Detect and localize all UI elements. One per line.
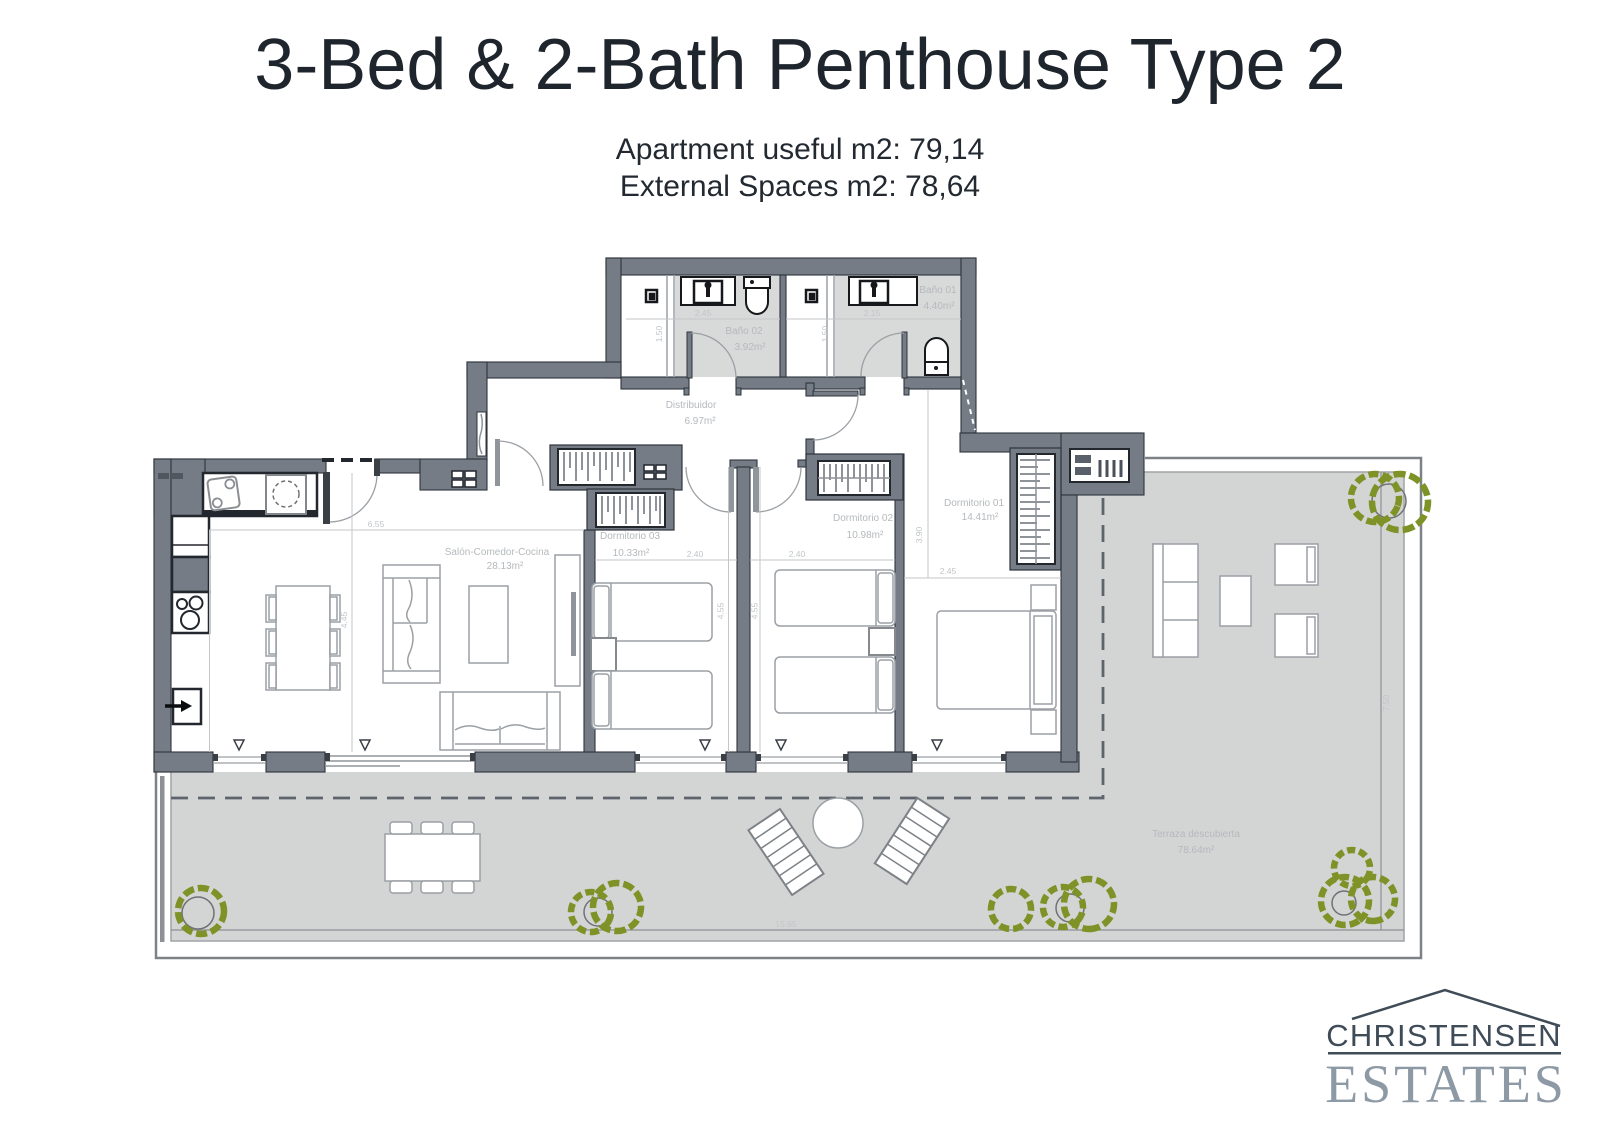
svg-text:1.50: 1.50 — [654, 325, 664, 342]
svg-text:1.50: 1.50 — [820, 325, 830, 342]
svg-text:6.97m²: 6.97m² — [684, 416, 716, 427]
svg-text:15.65: 15.65 — [775, 919, 797, 929]
svg-text:External Spaces m2: 78,64: External Spaces m2: 78,64 — [620, 170, 980, 203]
svg-text:Distribuidor: Distribuidor — [666, 400, 717, 411]
svg-text:10.33m²: 10.33m² — [613, 548, 650, 559]
svg-text:2.45: 2.45 — [940, 566, 957, 576]
svg-text:4.55: 4.55 — [750, 602, 760, 619]
svg-text:28.13m²: 28.13m² — [487, 561, 524, 572]
svg-text:6.55: 6.55 — [368, 519, 385, 529]
svg-text:4.45: 4.45 — [339, 611, 349, 628]
svg-text:2.15: 2.15 — [864, 308, 881, 318]
svg-text:2.40: 2.40 — [687, 549, 704, 559]
svg-text:2.40: 2.40 — [789, 549, 806, 559]
svg-text:Terraza descubierta: Terraza descubierta — [1152, 829, 1240, 840]
svg-text:Baño 02: Baño 02 — [725, 326, 763, 337]
svg-text:7.50: 7.50 — [1381, 694, 1391, 711]
svg-text:4.40m²: 4.40m² — [923, 301, 955, 312]
svg-text:3.90: 3.90 — [914, 526, 924, 543]
svg-text:10.98m²: 10.98m² — [847, 530, 884, 541]
svg-text:2.45: 2.45 — [695, 308, 712, 318]
svg-text:3-Bed & 2-Bath Penthouse Type: 3-Bed & 2-Bath Penthouse Type 2 — [254, 25, 1345, 105]
svg-text:CHRISTENSEN: CHRISTENSEN — [1326, 1018, 1561, 1053]
svg-text:ESTATES: ESTATES — [1325, 1054, 1567, 1114]
svg-text:3.92m²: 3.92m² — [734, 342, 766, 353]
svg-text:Baño 01: Baño 01 — [919, 285, 957, 296]
svg-text:Salón-Comedor-Cocina: Salón-Comedor-Cocina — [445, 547, 550, 558]
svg-text:Apartment useful m2: 79,14: Apartment useful m2: 79,14 — [616, 133, 985, 166]
svg-text:14.41m²: 14.41m² — [962, 512, 999, 523]
svg-text:Dormitorio 01: Dormitorio 01 — [944, 498, 1004, 509]
svg-text:78.64m²: 78.64m² — [1178, 845, 1215, 856]
svg-text:Dormitorio 02: Dormitorio 02 — [833, 513, 893, 524]
svg-text:Dormitorio 03: Dormitorio 03 — [600, 531, 660, 542]
svg-text:4.55: 4.55 — [716, 602, 726, 619]
